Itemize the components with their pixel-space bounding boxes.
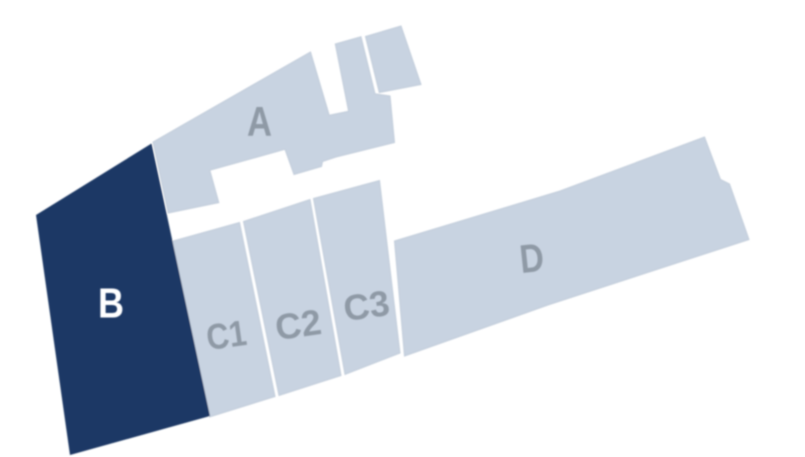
svg-text:C3: C3: [341, 282, 392, 329]
svg-text:B: B: [98, 280, 124, 327]
svg-text:C2: C2: [272, 301, 323, 348]
svg-text:C1: C1: [204, 312, 249, 358]
svg-text:D: D: [518, 236, 546, 282]
svg-text:A: A: [247, 98, 272, 145]
